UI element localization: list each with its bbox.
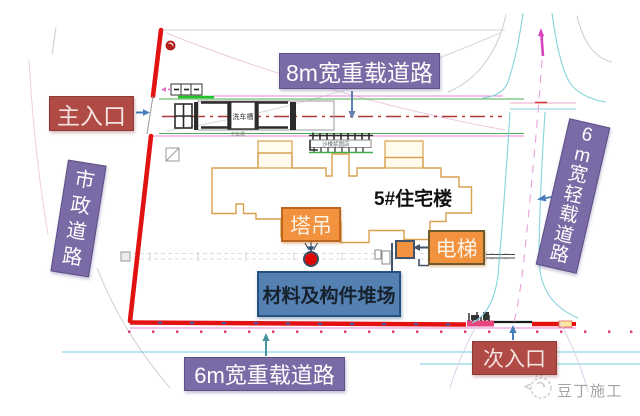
svg-text:洗车槽: 洗车槽 [233, 112, 254, 121]
svg-text:洗车槽: 洗车槽 [230, 131, 245, 138]
svg-text:沙楼浆圆店: 沙楼浆圆店 [322, 140, 350, 148]
